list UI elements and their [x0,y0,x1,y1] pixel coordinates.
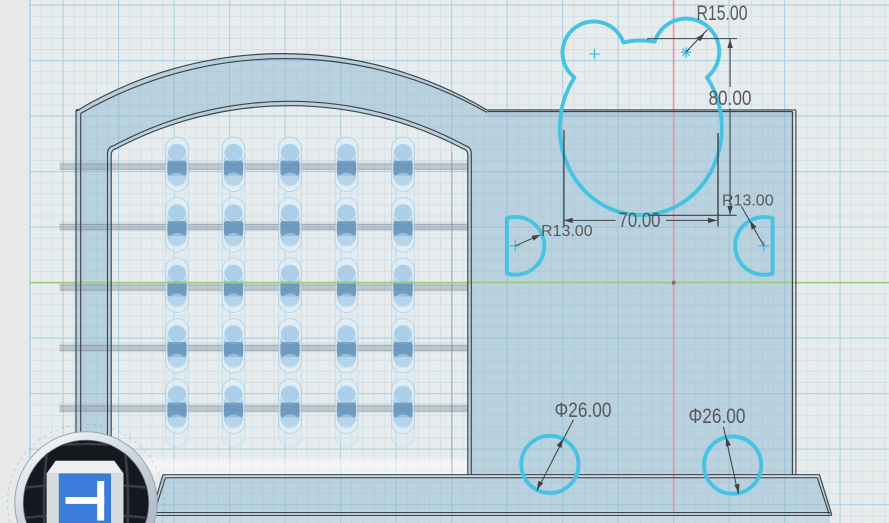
svg-text:70.00: 70.00 [619,209,661,232]
svg-text:80.00: 80.00 [709,87,752,110]
svg-text:R13.00: R13.00 [722,193,774,210]
svg-text:R13.00: R13.00 [541,223,593,240]
svg-text:Φ26.00: Φ26.00 [689,405,746,428]
svg-text:R15.00: R15.00 [697,2,748,25]
svg-text:Φ26.00: Φ26.00 [555,399,612,422]
